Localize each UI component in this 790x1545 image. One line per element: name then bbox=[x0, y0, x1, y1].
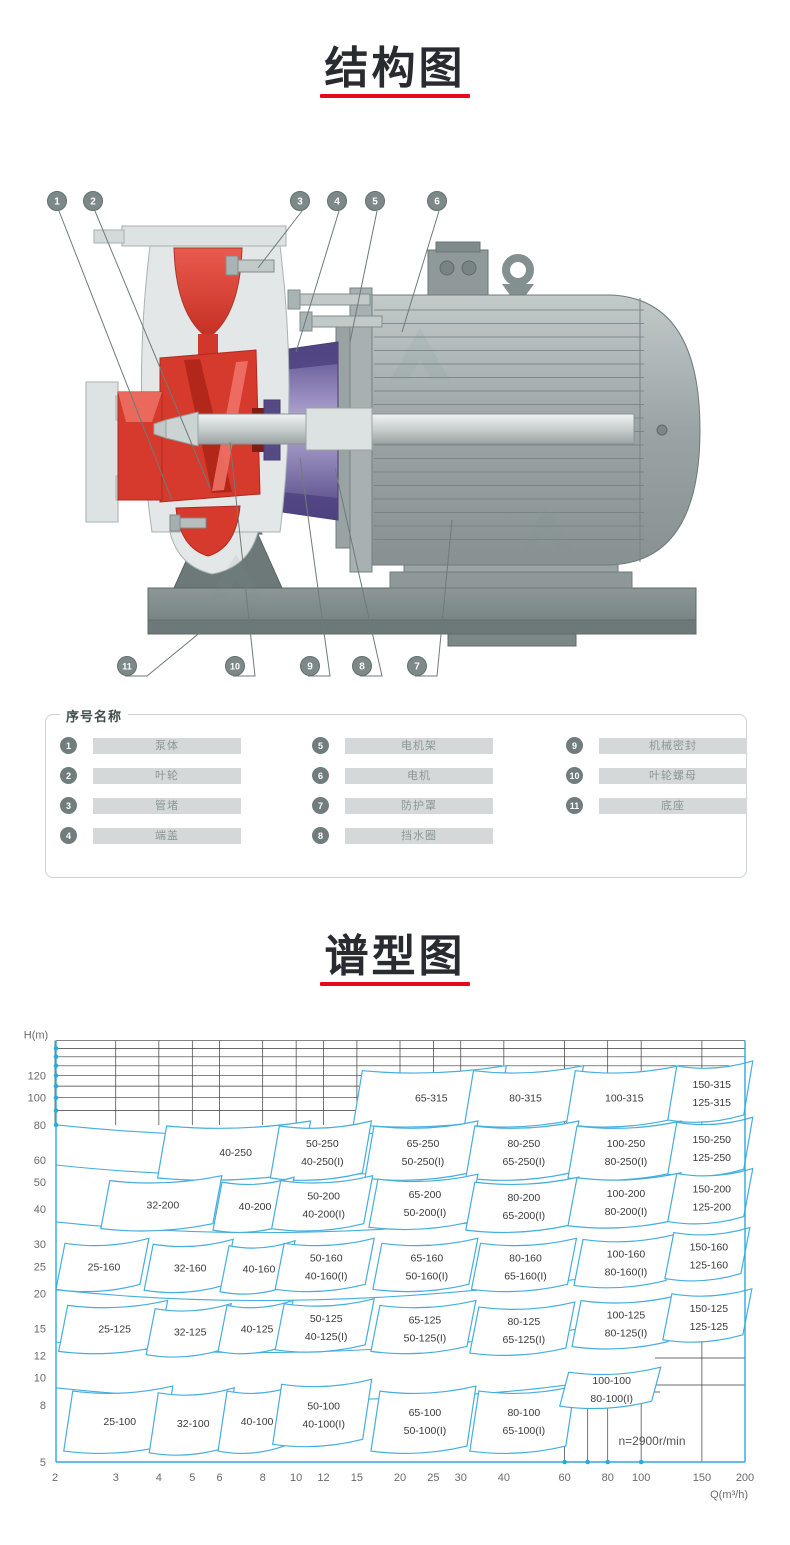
legend-item: 7防护罩 bbox=[312, 797, 493, 814]
pump-model-label: 80-125 bbox=[507, 1316, 540, 1328]
legend-item: 9机械密封 bbox=[566, 737, 747, 754]
speed-note: n=2900r/min bbox=[618, 1434, 685, 1448]
legend-column-1: 1泵体2叶轮3管堵4端盖 bbox=[60, 737, 241, 857]
pump-model-label: 40-200(I) bbox=[302, 1209, 345, 1221]
pump-model-region bbox=[668, 1169, 753, 1224]
legend-item: 6电机 bbox=[312, 767, 493, 784]
pump-model-label: 50-200(I) bbox=[404, 1207, 447, 1219]
pump-model-label: 25-125 bbox=[98, 1323, 131, 1335]
pump-model-region bbox=[371, 1386, 476, 1453]
structure-title-underline bbox=[320, 94, 470, 98]
y-tick-label: 80 bbox=[34, 1120, 46, 1132]
legend-item: 10叶轮螺母 bbox=[566, 767, 747, 784]
pump-model-region bbox=[466, 1177, 579, 1232]
pump-model-label: 40-100(I) bbox=[302, 1418, 345, 1430]
pump-model-label: 32-200 bbox=[147, 1200, 180, 1212]
pump-model-region bbox=[663, 1289, 752, 1342]
x-tick-label: 15 bbox=[351, 1472, 363, 1484]
pump-model-region bbox=[466, 1121, 579, 1180]
pump-model-label: 40-125 bbox=[241, 1323, 274, 1335]
y-tick-label: 25 bbox=[34, 1261, 46, 1273]
pump-model-label: 50-200 bbox=[307, 1191, 340, 1203]
pump-model-region bbox=[472, 1238, 577, 1291]
pump-model-label: 65-160 bbox=[411, 1252, 444, 1264]
legend-item-name: 挡水圈 bbox=[345, 828, 493, 844]
legend-item: 1泵体 bbox=[60, 737, 241, 754]
pump-model-label: 65-125(I) bbox=[503, 1334, 546, 1346]
legend-item-name: 叶轮 bbox=[93, 768, 241, 784]
y-tick-label: 120 bbox=[28, 1071, 46, 1083]
pump-model-label: 65-160(I) bbox=[504, 1270, 547, 1282]
y-tick-label: 8 bbox=[40, 1400, 46, 1412]
pump-model-region bbox=[470, 1302, 575, 1355]
legend-item-name: 底座 bbox=[599, 798, 747, 814]
pump-model-region bbox=[668, 1061, 753, 1122]
pump-model-label: 80-160 bbox=[509, 1252, 542, 1264]
y-tick-label: 30 bbox=[34, 1239, 46, 1251]
pump-model-label: 150-200 bbox=[692, 1184, 731, 1196]
pump-model-label: 80-100 bbox=[507, 1407, 540, 1419]
pump-model-region bbox=[574, 1234, 675, 1287]
pump-model-label: 125-250 bbox=[692, 1152, 731, 1164]
pump-model-label: 100-100 bbox=[592, 1375, 631, 1387]
x-axis-title: Q(m³/h) bbox=[710, 1489, 748, 1501]
legend-item-name: 电机架 bbox=[345, 738, 493, 754]
pump-model-label: 80-200(I) bbox=[605, 1206, 648, 1218]
callout-number: 4 bbox=[334, 197, 340, 208]
legend-item-number: 5 bbox=[312, 737, 329, 754]
pump-model-label: 100-315 bbox=[605, 1093, 644, 1105]
legend-item-number: 9 bbox=[566, 737, 583, 754]
pump-model-label: 25-160 bbox=[88, 1261, 121, 1273]
y-tick-label: 20 bbox=[34, 1288, 46, 1300]
pump-model-region bbox=[272, 1176, 373, 1231]
legend-item-number: 8 bbox=[312, 827, 329, 844]
pump-model-label: 50-125(I) bbox=[404, 1332, 447, 1344]
pump-spectrum-chart: 65-31580-315100-315150-315125-31540-2505… bbox=[0, 1025, 790, 1545]
pump-model-label: 32-125 bbox=[174, 1327, 207, 1339]
x-tick-label: 60 bbox=[558, 1472, 570, 1484]
legend-item-name: 端盖 bbox=[93, 828, 241, 844]
pump-model-label: 125-315 bbox=[692, 1097, 731, 1109]
legend-item-name: 泵体 bbox=[93, 738, 241, 754]
callout-number: 11 bbox=[122, 662, 132, 672]
x-tick-label: 20 bbox=[394, 1472, 406, 1484]
legend-item-number: 4 bbox=[60, 827, 77, 844]
pump-model-label: 50-100(I) bbox=[404, 1425, 447, 1437]
callout-number: 10 bbox=[230, 662, 240, 672]
legend-item: 3管堵 bbox=[60, 797, 241, 814]
y-tick-label: 12 bbox=[34, 1351, 46, 1363]
pump-model-label: 50-160 bbox=[310, 1252, 343, 1264]
callout-number: 9 bbox=[307, 662, 313, 673]
pump-model-label: 80-250(I) bbox=[605, 1156, 648, 1168]
legend-item: 5电机架 bbox=[312, 737, 493, 754]
pump-model-label: 65-200 bbox=[409, 1189, 442, 1201]
pump-model-label: 150-315 bbox=[692, 1079, 731, 1091]
pump-model-label: 50-160(I) bbox=[406, 1270, 449, 1282]
y-tick-label: 60 bbox=[34, 1155, 46, 1167]
pump-model-region bbox=[369, 1174, 478, 1229]
legend-item-number: 11 bbox=[566, 797, 583, 814]
callout-number: 3 bbox=[297, 197, 303, 208]
pump-model-label: 32-160 bbox=[174, 1262, 207, 1274]
x-tick-label: 8 bbox=[260, 1472, 266, 1484]
legend-item-name: 叶轮螺母 bbox=[599, 768, 747, 784]
pump-model-label: 125-125 bbox=[690, 1321, 729, 1333]
callout-number: 5 bbox=[372, 197, 378, 208]
legend-item-name: 电机 bbox=[345, 768, 493, 784]
callout-number: 7 bbox=[414, 662, 420, 673]
x-tick-label: 25 bbox=[427, 1472, 439, 1484]
legend-item: 2叶轮 bbox=[60, 767, 241, 784]
x-tick-label: 12 bbox=[317, 1472, 329, 1484]
y-tick-label: 40 bbox=[34, 1204, 46, 1216]
legend-item: 8挡水圈 bbox=[312, 827, 493, 844]
pump-model-label: 65-125 bbox=[409, 1314, 442, 1326]
pump-product-page: 结构图 bbox=[0, 0, 790, 1545]
spectrum-section-title: 谱型图 bbox=[0, 920, 790, 984]
legend-item-name: 机械密封 bbox=[599, 738, 747, 754]
pump-model-label: 125-160 bbox=[690, 1260, 729, 1272]
pump-model-label: 65-315 bbox=[415, 1093, 448, 1105]
x-tick-label: 2 bbox=[52, 1472, 58, 1484]
pump-baseplate bbox=[148, 588, 696, 646]
pump-model-region bbox=[275, 1238, 374, 1291]
pump-model-label: 150-250 bbox=[692, 1134, 731, 1146]
pump-model-label: 65-250(I) bbox=[503, 1156, 546, 1168]
legend-item: 11底座 bbox=[566, 797, 747, 814]
parts-legend-title: 序号名称 bbox=[60, 706, 128, 725]
pump-model-label: 80-100(I) bbox=[590, 1393, 633, 1405]
pump-model-label: 80-250 bbox=[507, 1138, 540, 1150]
structure-section-title: 结构图 bbox=[0, 32, 790, 96]
y-tick-label: 100 bbox=[28, 1093, 46, 1105]
pump-model-label: 80-315 bbox=[509, 1093, 542, 1105]
pump-model-label: 50-250(I) bbox=[402, 1156, 445, 1168]
pump-model-label: 40-160 bbox=[243, 1264, 276, 1276]
pump-model-label: 40-125(I) bbox=[305, 1331, 348, 1343]
pump-model-label: 100-250 bbox=[607, 1138, 646, 1150]
y-tick-label: 15 bbox=[34, 1323, 46, 1335]
x-tick-label: 3 bbox=[113, 1472, 119, 1484]
pump-model-label: 40-100 bbox=[241, 1416, 274, 1428]
pump-model-label: 100-200 bbox=[607, 1188, 646, 1200]
pump-model-label: 100-160 bbox=[607, 1248, 646, 1260]
pump-model-region bbox=[668, 1117, 753, 1176]
pump-model-regions: 65-31580-315100-315150-315125-31540-2505… bbox=[56, 1061, 753, 1455]
pump-model-region bbox=[273, 1379, 372, 1446]
pump-model-region bbox=[275, 1299, 374, 1352]
pump-model-label: 40-250(I) bbox=[301, 1156, 344, 1168]
pump-model-label: 40-250 bbox=[219, 1147, 252, 1159]
pump-model-region bbox=[365, 1121, 478, 1180]
callout-number: 1 bbox=[54, 197, 60, 208]
pump-model-region bbox=[270, 1121, 371, 1180]
pump-model-label: 50-100 bbox=[307, 1400, 340, 1412]
pump-model-label: 80-125(I) bbox=[605, 1328, 648, 1340]
legend-item-number: 6 bbox=[312, 767, 329, 784]
y-axis-title: H(m) bbox=[24, 1030, 48, 1042]
legend-item-name: 防护罩 bbox=[345, 798, 493, 814]
pump-model-label: 65-250 bbox=[407, 1138, 440, 1150]
pump-model-region bbox=[373, 1238, 478, 1291]
legend-item-number: 3 bbox=[60, 797, 77, 814]
parts-legend-panel: 序号名称 1泵体2叶轮3管堵4端盖 5电机架6电机7防护罩8挡水圈 9机械密封1… bbox=[45, 714, 747, 878]
spectrum-title-underline bbox=[320, 982, 470, 986]
pump-model-label: 150-160 bbox=[690, 1242, 729, 1254]
pump-model-label: 150-125 bbox=[690, 1303, 729, 1315]
pump-model-label: 32-100 bbox=[177, 1418, 210, 1430]
legend-column-2: 5电机架6电机7防护罩8挡水圈 bbox=[312, 737, 493, 857]
x-tick-label: 40 bbox=[498, 1472, 510, 1484]
legend-item-name: 管堵 bbox=[93, 798, 241, 814]
pump-model-label: 50-125 bbox=[310, 1313, 343, 1325]
x-tick-label: 80 bbox=[602, 1472, 614, 1484]
pump-shaft bbox=[154, 408, 634, 450]
legend-item: 4端盖 bbox=[60, 827, 241, 844]
pump-model-region bbox=[371, 1300, 476, 1353]
pump-model-region bbox=[568, 1173, 681, 1228]
pump-structure-diagram: 1234567891011 bbox=[0, 120, 790, 705]
y-tick-label: 10 bbox=[34, 1373, 46, 1385]
x-tick-label: 100 bbox=[632, 1472, 650, 1484]
pump-model-label: 25-100 bbox=[103, 1416, 136, 1428]
pump-model-label: 40-160(I) bbox=[305, 1270, 348, 1282]
pump-model-region bbox=[665, 1228, 750, 1281]
pump-model-label: 65-200(I) bbox=[503, 1210, 546, 1222]
pump-model-label: 125-200 bbox=[692, 1202, 731, 1214]
legend-item-number: 2 bbox=[60, 767, 77, 784]
pump-model-label: 65-100 bbox=[409, 1407, 442, 1419]
legend-item-number: 1 bbox=[60, 737, 77, 754]
pump-model-label: 50-250 bbox=[306, 1138, 339, 1150]
pump-model-label: 80-200 bbox=[507, 1192, 540, 1204]
callout-number: 6 bbox=[434, 197, 440, 208]
x-tick-label: 5 bbox=[189, 1472, 195, 1484]
pump-model-region bbox=[572, 1296, 677, 1349]
pump-model-region bbox=[568, 1121, 681, 1180]
x-tick-label: 30 bbox=[455, 1472, 467, 1484]
callout-number: 8 bbox=[359, 662, 365, 673]
terminal-box bbox=[428, 242, 488, 298]
x-tick-label: 10 bbox=[290, 1472, 302, 1484]
x-tick-label: 200 bbox=[736, 1472, 754, 1484]
callout-line bbox=[296, 211, 339, 352]
x-tick-label: 6 bbox=[217, 1472, 223, 1484]
pump-model-label: 65-100(I) bbox=[503, 1425, 546, 1437]
legend-column-3: 9机械密封10叶轮螺母11底座 bbox=[566, 737, 747, 827]
y-tick-label: 50 bbox=[34, 1177, 46, 1189]
x-tick-label: 150 bbox=[693, 1472, 711, 1484]
pump-model-label: 40-200 bbox=[239, 1201, 272, 1213]
x-tick-label: 4 bbox=[156, 1472, 162, 1484]
legend-item-number: 7 bbox=[312, 797, 329, 814]
pump-model-label: 80-160(I) bbox=[605, 1266, 648, 1278]
pump-model-label: 100-125 bbox=[607, 1310, 646, 1322]
callout-number: 2 bbox=[90, 197, 96, 208]
y-tick-label: 5 bbox=[40, 1457, 46, 1469]
legend-item-number: 10 bbox=[566, 767, 583, 784]
pump-model-region bbox=[470, 1386, 575, 1453]
